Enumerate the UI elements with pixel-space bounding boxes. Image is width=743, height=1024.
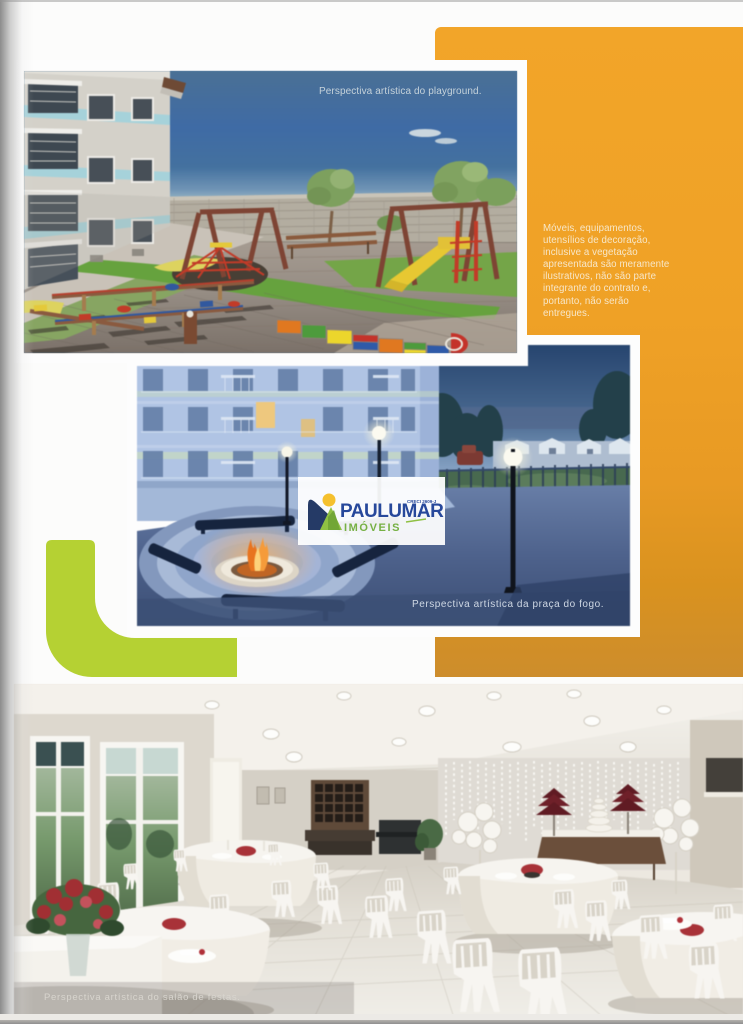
svg-text:PAULUMAR: PAULUMAR (340, 501, 444, 522)
svg-text:IMÓVEIS: IMÓVEIS (344, 521, 401, 534)
svg-text:CRECI 2609-J: CRECI 2609-J (407, 499, 437, 504)
